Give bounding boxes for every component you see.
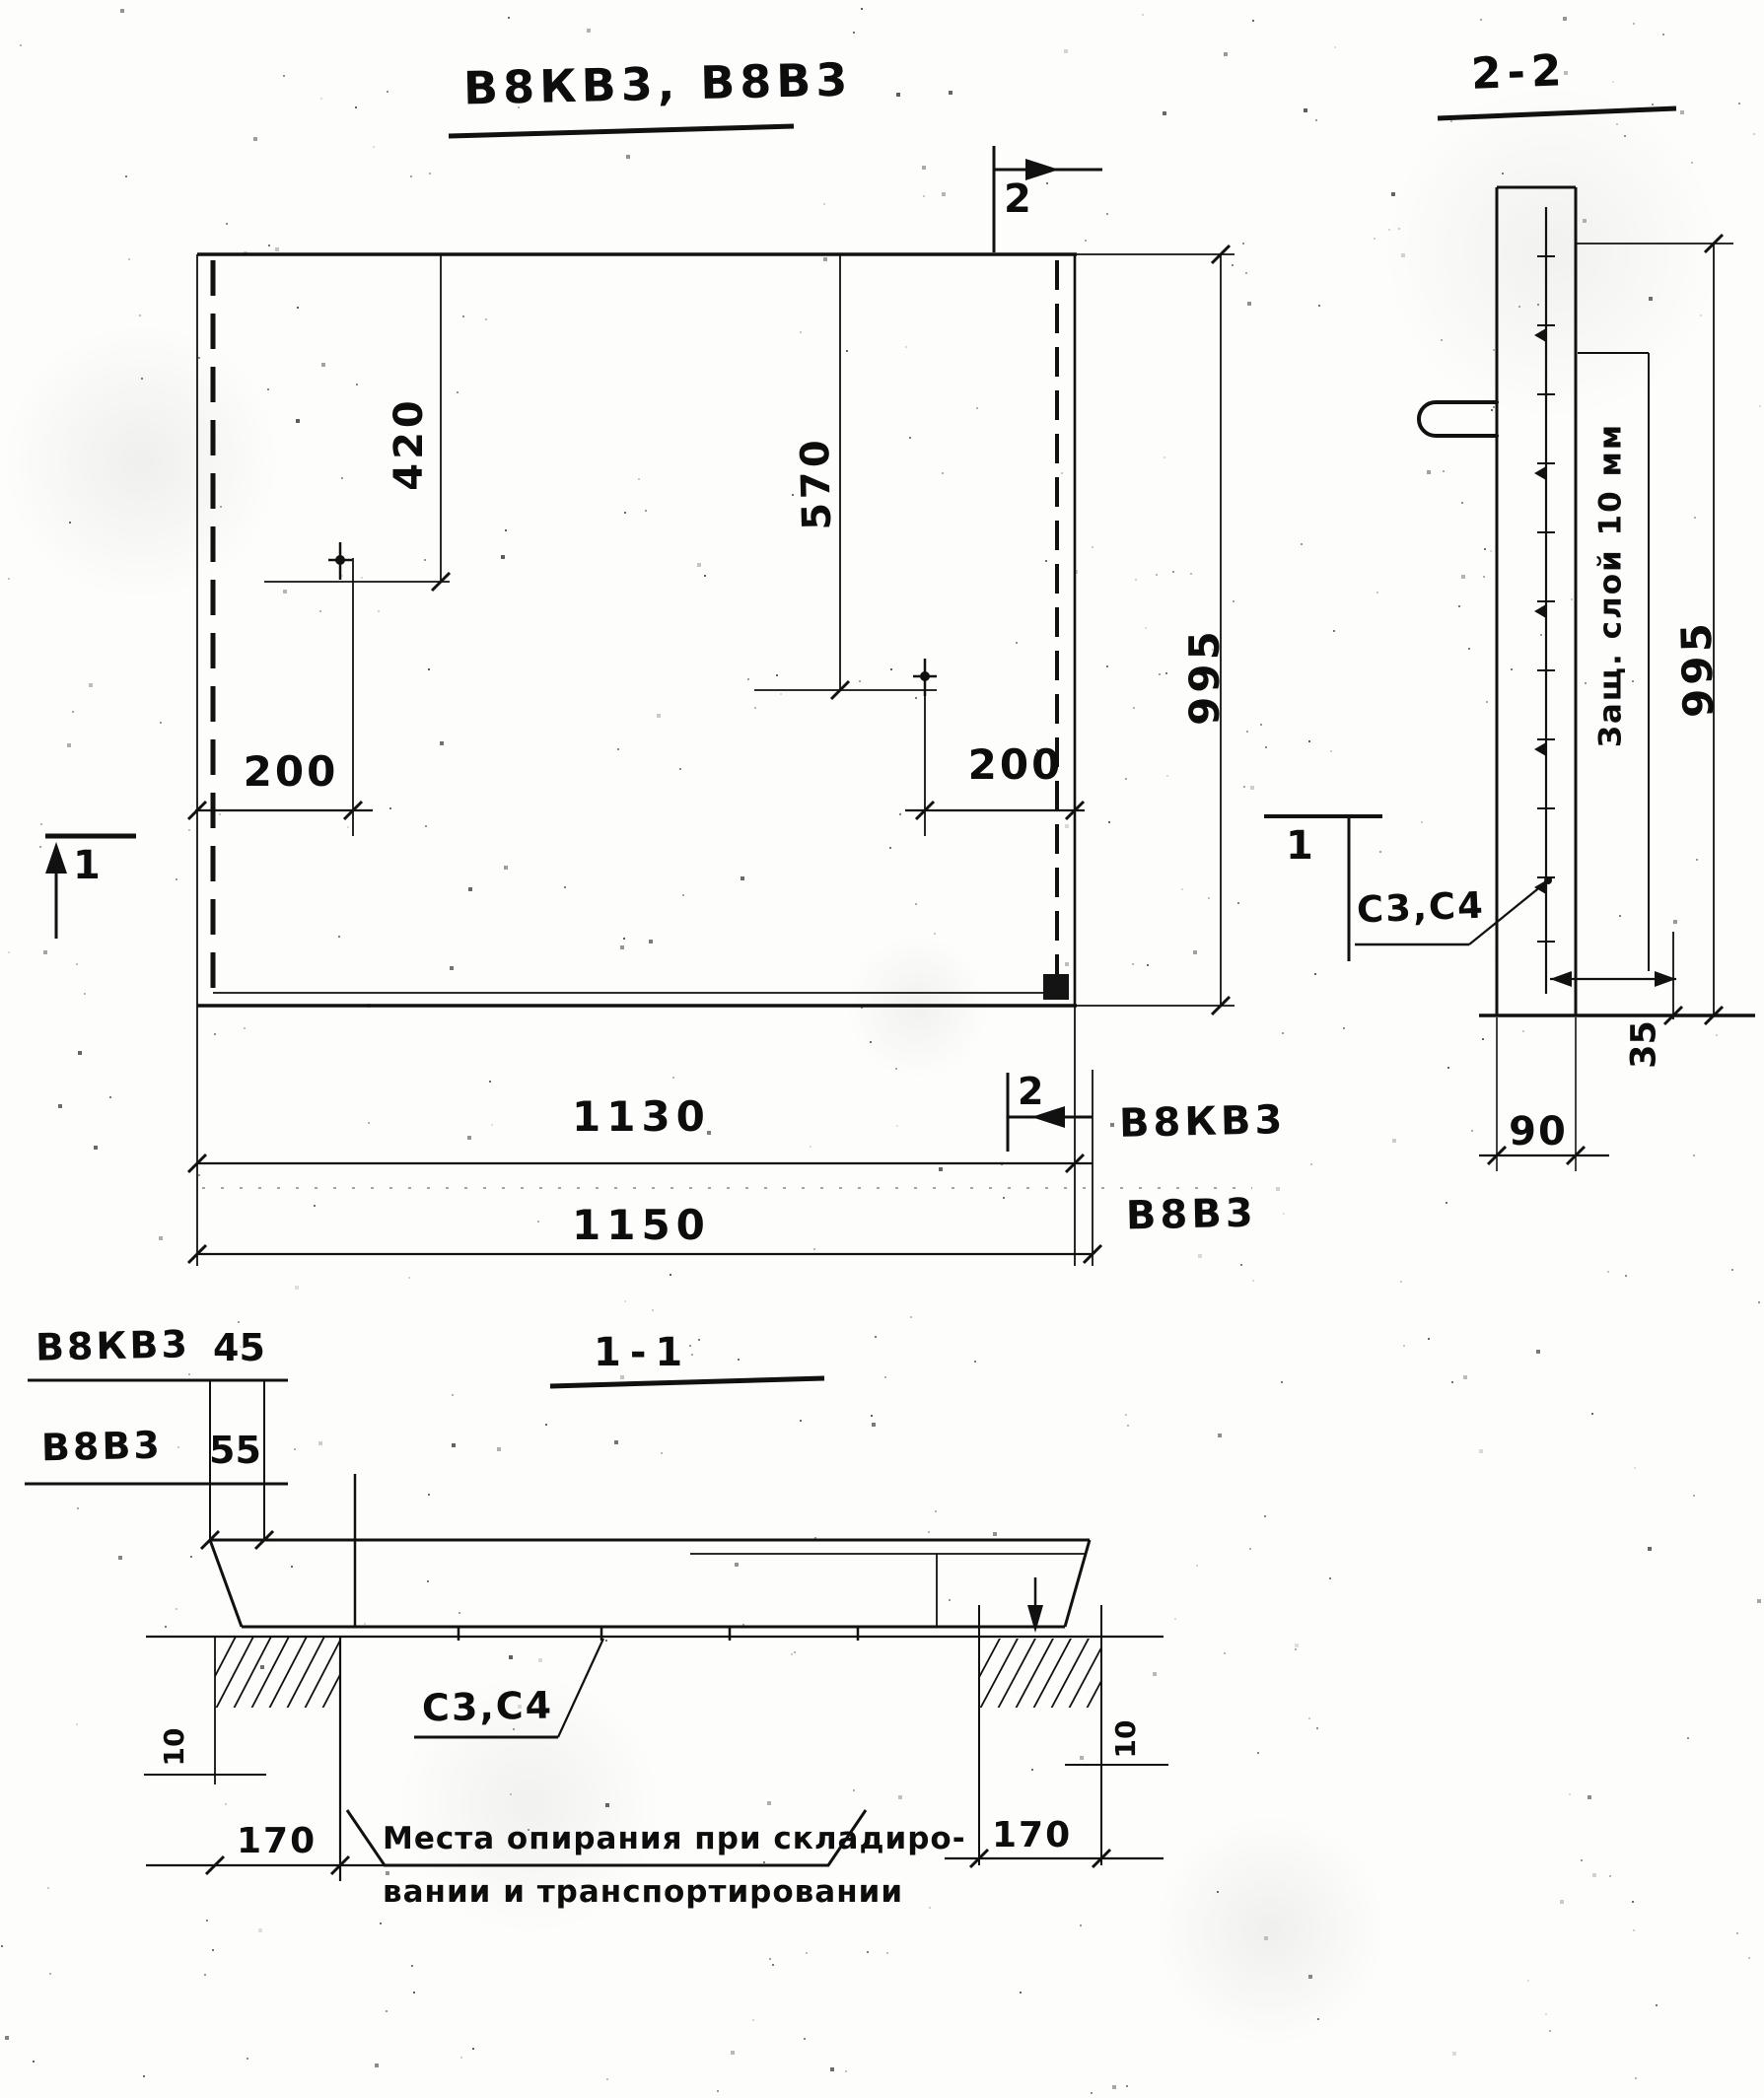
dim-1130: 1130 [572,1096,711,1138]
embedded-plate-mark [1043,974,1069,1000]
dim-570: 570 [794,375,839,593]
section-1-1-title: 1-1 [594,1333,691,1372]
dim-90: 90 [1499,1112,1578,1152]
edge-row-0-label: В8КВ3 [35,1325,191,1366]
support-note-line1: Места опирания при складиро- [383,1824,966,1854]
edge-row-1-label: В8В3 [41,1427,164,1467]
dim-995-section: 995 [1674,549,1722,787]
rebar-label-section22: С3,С4 [1356,887,1485,929]
dim-35-arrow [1550,932,1682,1024]
section-1-1-linework [25,1380,1168,1881]
row-label-v8v3: В8В3 [1126,1194,1258,1236]
dim-170-right: 170 [992,1818,1072,1853]
dim-200-right: 200 [952,744,1080,786]
edge-row-0-value: 45 [213,1329,265,1366]
rebar-line [1534,207,1555,994]
lifting-hook [1419,402,1497,436]
dim-10-left: 10 [161,1713,188,1782]
rebar-label-section11: С3,С4 [422,1686,554,1726]
drawing-title: В8КВ3, В8В3 [463,57,853,111]
dim-200-left: 200 [227,751,355,793]
section-mark-1-right: 1 [1286,826,1313,866]
support-note-line2: вании и транспортировании [383,1877,903,1908]
dim-420: 420 [389,335,429,552]
dim-35: 35 [1628,1001,1662,1089]
protective-layer-note: Защ. слой 10 мм [1596,388,1627,783]
dim-10-right: 10 [1112,1705,1140,1774]
rebar-stub-ticks [459,1627,858,1641]
edge-row-1-value: 55 [209,1432,261,1469]
blueprint-scan-page: В8КВ3, В8В3 2-2 420 570 995 200 200 1130… [0,0,1764,2098]
section-mark-1-left: 1 [73,846,101,885]
row-label-v8kv3: В8КВ3 [1119,1100,1287,1144]
lifting-loop-left [328,542,352,580]
dim-995-plan: 995 [1184,568,1226,785]
section-mark-2-top: 2 [1004,179,1031,219]
dim-170-left: 170 [237,1824,317,1859]
dim-1150: 1150 [572,1205,711,1246]
section-mark-2-bottom: 2 [1018,1073,1043,1110]
section-2-2-title: 2-2 [1470,49,1568,97]
support-left-hatch [197,1635,361,1711]
drawing-linework [0,0,1764,2098]
